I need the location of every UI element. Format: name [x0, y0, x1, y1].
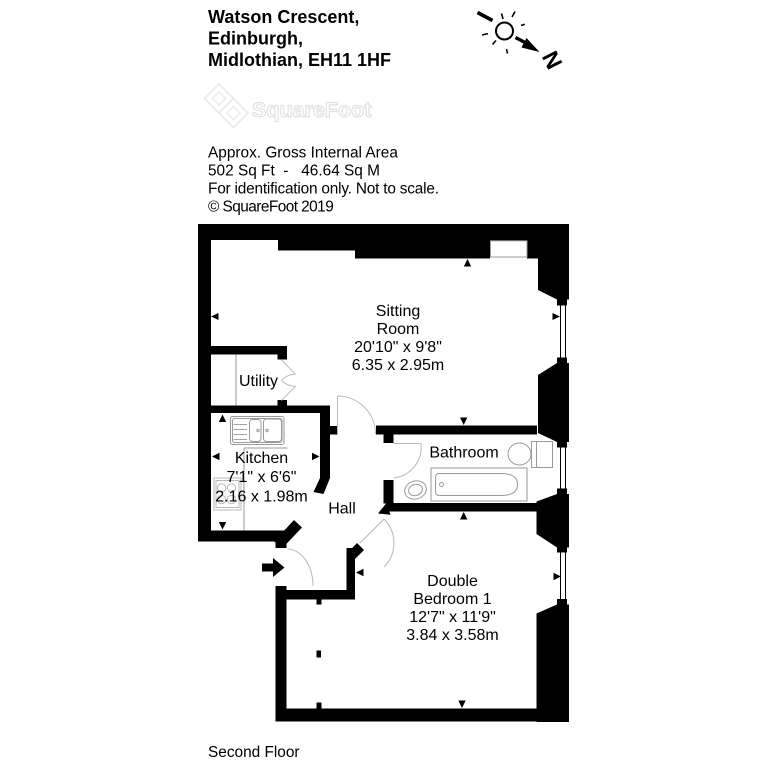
svg-text:Kitchen: Kitchen [235, 450, 288, 467]
svg-text:Bedroom 1: Bedroom 1 [413, 591, 491, 608]
svg-text:N: N [537, 47, 568, 74]
svg-text:Approx. Gross Internal Area: Approx. Gross Internal Area [208, 145, 398, 162]
svg-text:20'10" x 9'8": 20'10" x 9'8" [354, 339, 442, 356]
svg-text:6.35 x 2.95m: 6.35 x 2.95m [352, 357, 445, 374]
svg-text:502 Sq Ft - 46.64 Sq M: 502 Sq Ft - 46.64 Sq M [208, 163, 380, 180]
svg-text:Watson Crescent,: Watson Crescent, [208, 7, 359, 27]
svg-text:Utility: Utility [239, 373, 278, 390]
svg-text:3.84 x 3.58m: 3.84 x 3.58m [406, 627, 499, 644]
svg-text:Double: Double [427, 573, 478, 590]
svg-text:12'7" x 11'9": 12'7" x 11'9" [409, 609, 496, 626]
svg-text:SquareFoot: SquareFoot [252, 98, 371, 122]
svg-text:For identification only. Not t: For identification only. Not to scale. [208, 181, 439, 198]
svg-text:7'1" x 6'6": 7'1" x 6'6" [227, 469, 297, 486]
svg-text:Edinburgh,: Edinburgh, [208, 29, 303, 49]
svg-text:© SquareFoot 2019: © SquareFoot 2019 [208, 199, 333, 216]
svg-text:Bathroom: Bathroom [429, 445, 498, 462]
svg-text:Hall: Hall [328, 501, 356, 518]
svg-text:Room: Room [377, 321, 420, 338]
svg-text:Sitting: Sitting [376, 303, 420, 320]
svg-text:Second Floor: Second Floor [208, 744, 300, 761]
svg-text:Midlothian, EH11 1HF: Midlothian, EH11 1HF [208, 50, 391, 70]
svg-text:2.16 x 1.98m: 2.16 x 1.98m [215, 489, 308, 506]
